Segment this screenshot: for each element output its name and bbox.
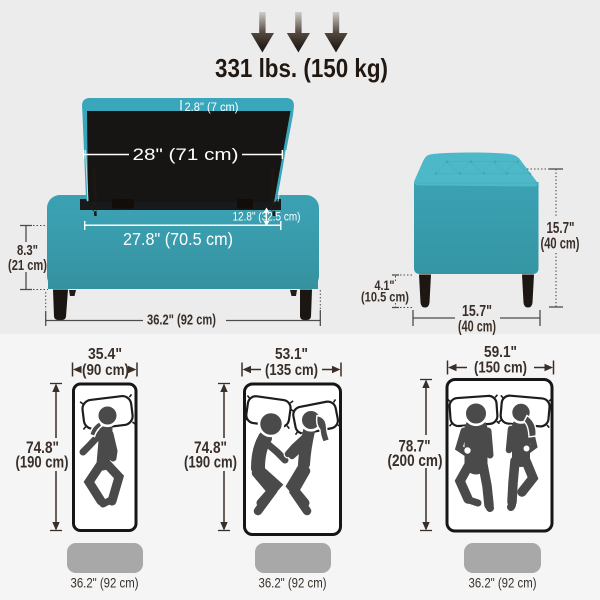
svg-text:12.8" (32.5 cm): 12.8" (32.5 cm) [233, 210, 301, 224]
svg-text:36.2" (92 cm): 36.2" (92 cm) [469, 575, 537, 591]
svg-text:(21 cm): (21 cm) [8, 257, 47, 274]
svg-text:(190 cm): (190 cm) [16, 453, 69, 472]
svg-text:2.8" (7 cm): 2.8" (7 cm) [185, 102, 239, 114]
svg-text:15.7": 15.7" [462, 303, 492, 320]
svg-text:35.4": 35.4" [88, 346, 122, 363]
svg-text:53.1": 53.1" [275, 346, 308, 363]
svg-text:(10.5 cm): (10.5 cm) [361, 289, 409, 305]
svg-text:36.2" (92 cm): 36.2" (92 cm) [147, 313, 216, 329]
svg-text:331 lbs. (150 kg): 331 lbs. (150 kg) [215, 53, 388, 83]
svg-text:36.2" (92 cm): 36.2" (92 cm) [259, 575, 327, 591]
svg-text:(200 cm): (200 cm) [388, 451, 443, 470]
svg-text:(40 cm): (40 cm) [458, 319, 496, 336]
svg-text:36.2" (92 cm): 36.2" (92 cm) [71, 575, 139, 591]
svg-text:15.7": 15.7" [547, 220, 575, 237]
svg-text:59.1": 59.1" [484, 344, 517, 361]
svg-text:28" (71 cm): 28" (71 cm) [133, 146, 239, 164]
svg-text:27.8" (70.5 cm): 27.8" (70.5 cm) [123, 229, 233, 249]
svg-text:(135 cm): (135 cm) [265, 362, 318, 379]
svg-text:(150 cm): (150 cm) [474, 360, 527, 377]
svg-text:(40 cm): (40 cm) [541, 236, 580, 253]
svg-text:(190 cm): (190 cm) [184, 453, 237, 472]
svg-text:(90 cm): (90 cm) [82, 362, 129, 379]
